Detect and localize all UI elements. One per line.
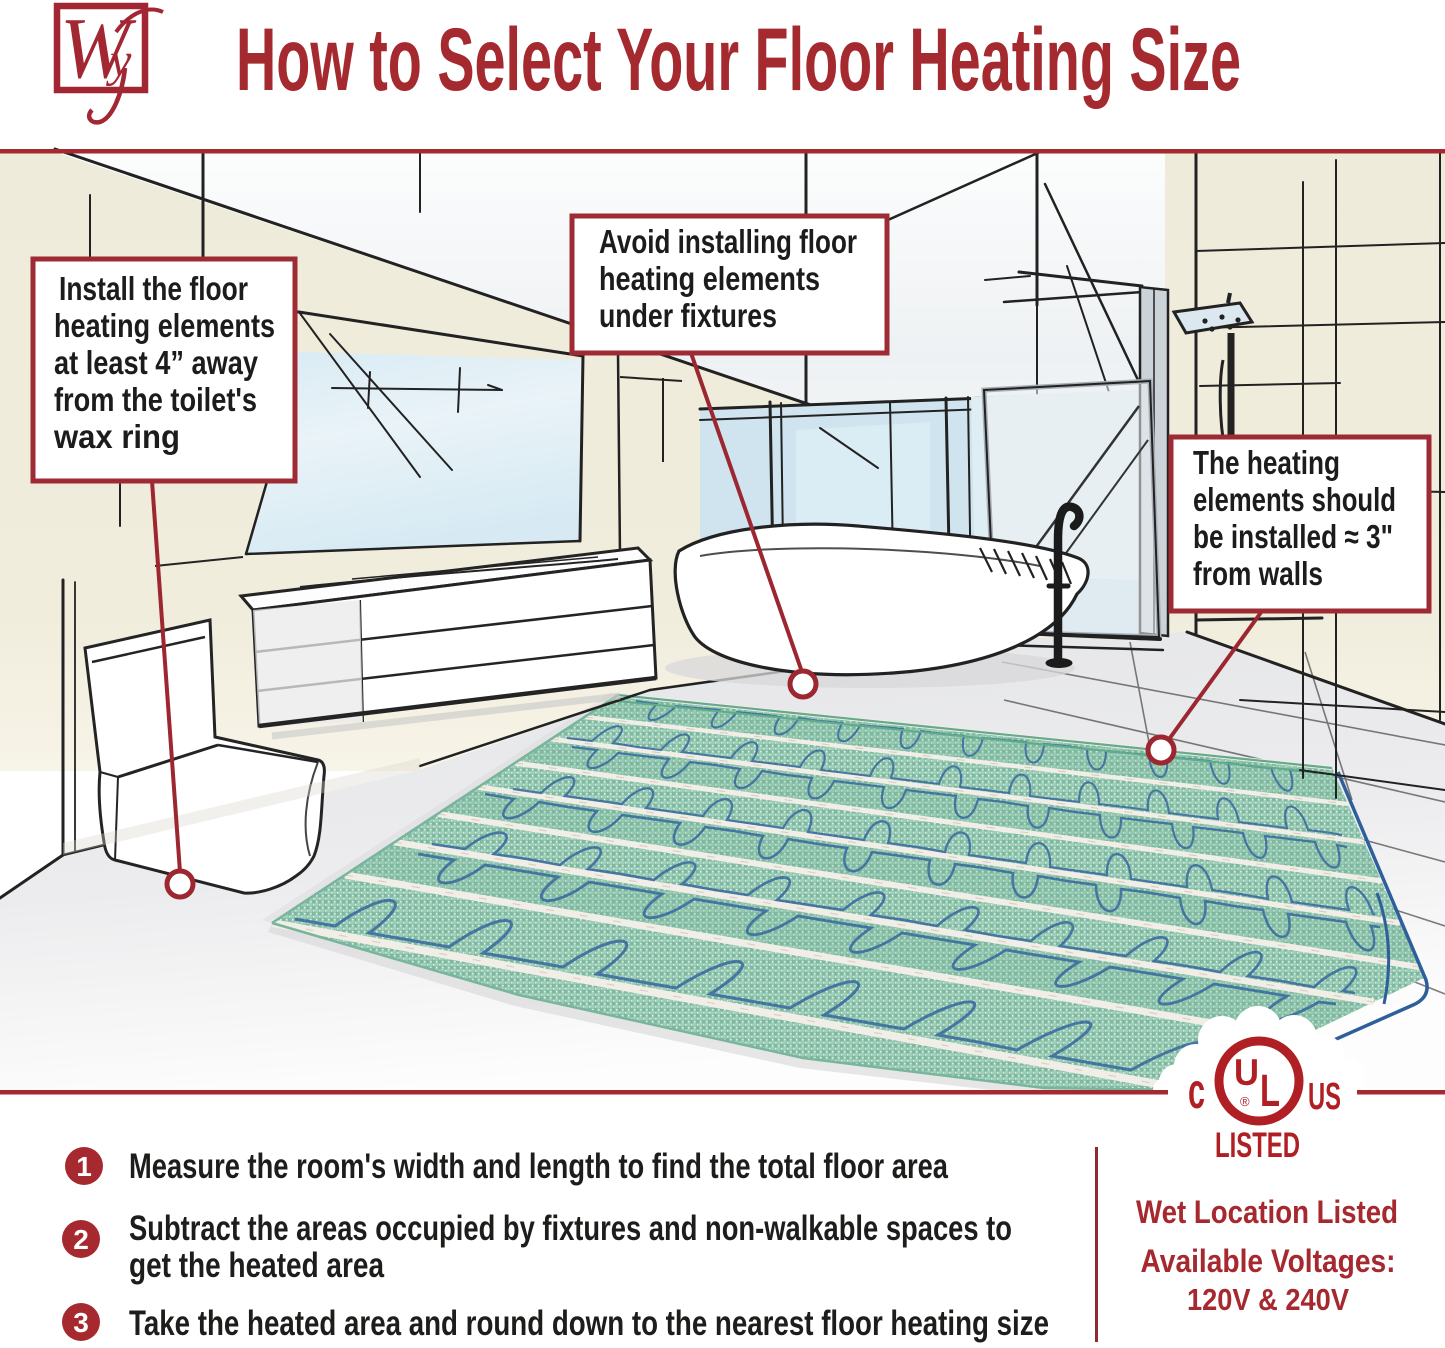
svg-text:Subtract the areas occupied by: Subtract the areas occupied by fixtures … [129,1209,1012,1248]
svg-text:Install the floor: Install the floor [59,270,248,307]
svg-text:3: 3 [73,1307,89,1338]
svg-text:L: L [1260,1065,1280,1116]
svg-text:Measure the room's width and l: Measure the room's width and length to f… [129,1147,948,1186]
svg-text:U: U [1234,1052,1259,1093]
svg-text:get the heated area: get the heated area [129,1246,384,1285]
svg-text:y: y [105,34,132,87]
svg-text:The heating: The heating [1193,444,1340,481]
svg-text:Available Voltages:: Available Voltages: [1141,1243,1396,1279]
svg-text:How to Select Your Floor Heati: How to Select Your Floor Heating Size [236,9,1241,109]
svg-text:wax ring: wax ring [53,418,180,455]
svg-text:®: ® [1240,1094,1250,1109]
svg-text:Wet Location Listed: Wet Location Listed [1136,1194,1398,1230]
svg-text:at least 4” away: at least 4” away [54,344,259,381]
svg-text:Avoid installing floor: Avoid installing floor [599,223,857,260]
svg-text:US: US [1308,1076,1341,1118]
svg-text:2: 2 [73,1224,89,1255]
svg-text:heating elements: heating elements [54,307,275,344]
svg-text:heating elements: heating elements [599,260,820,297]
svg-text:1: 1 [76,1151,92,1182]
svg-text:from the toilet's: from the toilet's [54,381,257,418]
svg-text:from walls: from walls [1193,555,1323,592]
svg-text:c: c [1188,1063,1205,1119]
svg-text:elements should: elements should [1193,481,1396,518]
svg-text:under fixtures: under fixtures [599,297,777,334]
svg-text:be installed ≈ 3": be installed ≈ 3" [1193,518,1393,555]
svg-text:Take the heated area and round: Take the heated area and round down to t… [129,1304,1049,1343]
svg-text:LISTED: LISTED [1215,1126,1300,1165]
svg-text:120V & 240V: 120V & 240V [1187,1282,1349,1317]
